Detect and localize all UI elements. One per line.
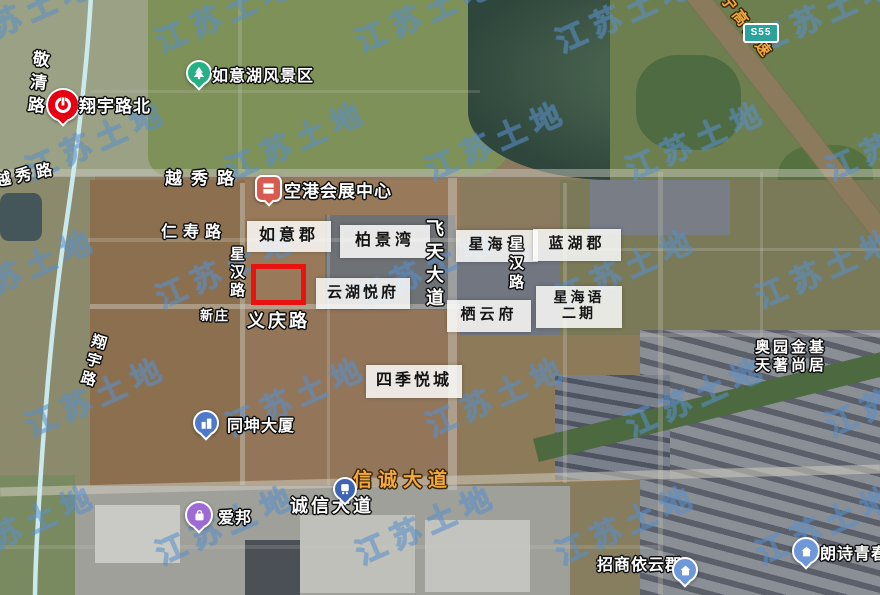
estate-text-line1: 星海语 — [554, 291, 605, 307]
expo-center-icon[interactable] — [255, 175, 282, 202]
highlighted-parcel-rect — [251, 264, 306, 305]
estate-text-line2: 天著尚居 — [755, 357, 827, 375]
estate-text-line1: 奥园金基 — [755, 339, 827, 357]
estate-text: 柏景湾 — [355, 232, 415, 250]
community-icon-zhaoshang[interactable] — [672, 557, 698, 583]
estate-label-qiyunfu: 栖云府 — [447, 300, 531, 332]
estate-text: 蓝湖郡 — [548, 236, 605, 253]
scenic-area-icon[interactable] — [186, 60, 212, 86]
expressway-badge-s55: S55 — [743, 23, 779, 43]
nanjing-metro-logo-icon — [53, 95, 73, 115]
place-label-xinzhuang: 新庄 — [200, 305, 230, 324]
road-label-xinghanlu-east: 星汉路 — [505, 236, 526, 293]
estate-text: 云湖悦府 — [327, 285, 399, 302]
tree-icon — [192, 66, 206, 80]
estate-text: 栖云府 — [460, 307, 517, 324]
road-label-yiqinglu: 义庆路 — [247, 307, 310, 333]
house-icon — [800, 545, 813, 558]
road-label-renshoulu: 仁寿路 — [161, 218, 227, 242]
metro-station-icon[interactable] — [46, 88, 80, 122]
estate-label-aoyuan-jinji: 奥园金基 天著尚居 — [755, 339, 827, 375]
estate-label-ruyijun: 如意郡 — [247, 221, 331, 252]
community-icon-langshi[interactable] — [792, 537, 820, 565]
road-label-xinghanlu-west: 星汉路 — [226, 246, 247, 300]
poi-label-tongkun-tower[interactable]: 同坤大厦 — [227, 412, 295, 436]
shopping-bag-icon — [193, 509, 206, 522]
road-label-xinchengdadao: 信诚大道 — [353, 465, 453, 492]
poi-label-aibang[interactable]: 爱邦 — [218, 504, 252, 528]
estate-label-lanhujun: 蓝湖郡 — [533, 229, 621, 261]
metro-station-small-icon[interactable] — [333, 477, 357, 501]
building-icon — [200, 417, 213, 430]
poi-label-langshi-qingchun[interactable]: 朗诗青春街 — [820, 540, 880, 564]
train-icon — [339, 483, 351, 495]
estate-label-yunhu-yuefu: 云湖悦府 — [316, 278, 410, 309]
poi-label-konggang-expo[interactable]: 空港会展中心 — [284, 177, 392, 202]
estate-label-siji-yuecheng: 四季悦城 — [366, 365, 462, 398]
road-label-yuexiulu: 越秀路 — [165, 164, 243, 189]
road-label-feitiandadao: 飞天大道 — [421, 219, 447, 311]
house-icon — [679, 564, 692, 577]
exhibition-building-icon — [262, 182, 275, 195]
station-label-xiangyulubei[interactable]: 翔宇路北 — [79, 92, 151, 117]
poi-label-zhaoshang-yiyunjun[interactable]: 招商依云郡 — [597, 551, 682, 575]
estate-label-xinghaiyu-phase2: 星海语 二期 — [536, 286, 622, 328]
road-label-chengxindadao: 诚信大道 — [290, 492, 374, 518]
office-tower-icon[interactable] — [193, 410, 219, 436]
satellite-map[interactable]: 江苏土地江苏土地江苏土地江苏土地江苏土地江苏土地江苏土地江苏土地江苏土地江苏土地… — [0, 0, 880, 595]
estate-text: 四季悦城 — [376, 372, 452, 390]
poi-label-ruyihu-scenic[interactable]: 如意湖风景区 — [212, 62, 314, 86]
estate-label-bojingwan: 柏景湾 — [340, 225, 430, 258]
estate-text: 如意郡 — [259, 227, 319, 245]
estate-text-line2: 二期 — [562, 307, 596, 323]
shopping-icon[interactable] — [185, 501, 213, 529]
